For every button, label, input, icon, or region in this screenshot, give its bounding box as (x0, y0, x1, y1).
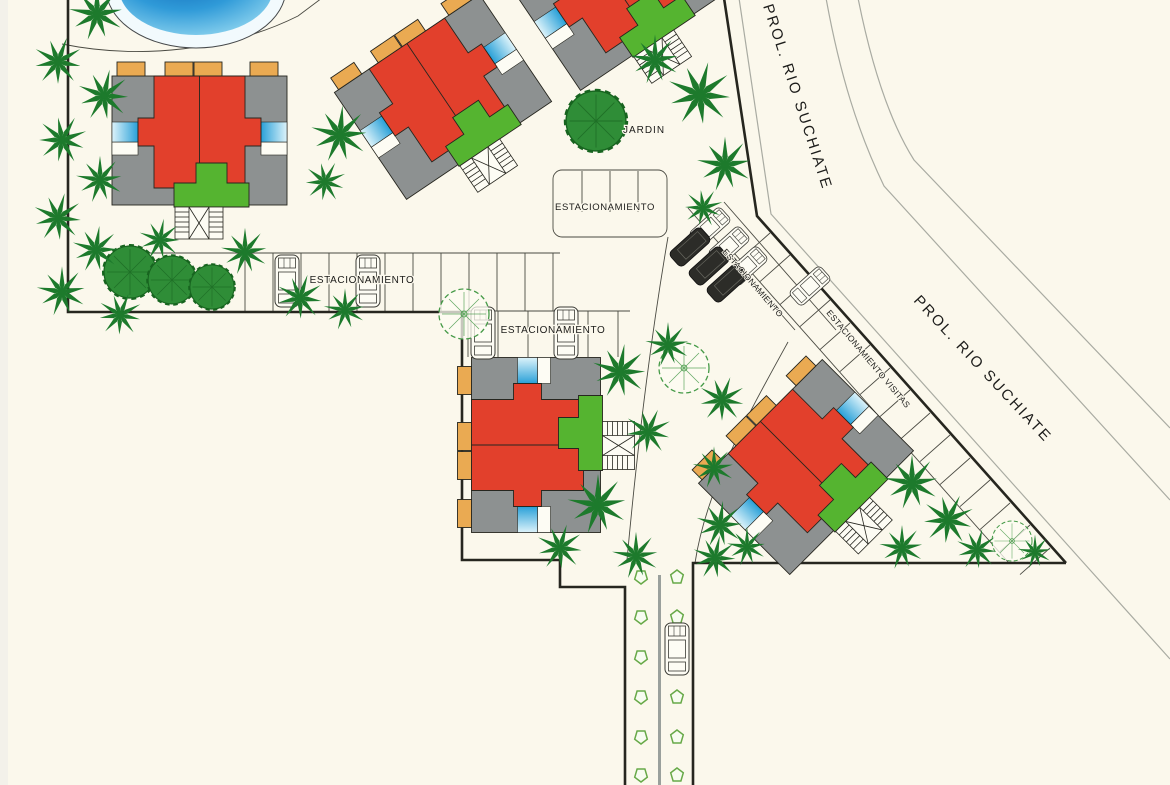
parking-label-left: ESTACIONAMIENTO (310, 275, 415, 286)
garden-label: JARDIN (623, 125, 665, 136)
outline-tree (439, 289, 489, 339)
parking-label-upper: ESTACIONAMIENTO (555, 202, 655, 213)
scan-margin (0, 0, 8, 785)
site-plan-canvas: PROL. RIO SUCHIATE PROL. RIO SUCHIATE JA… (0, 0, 1170, 785)
site-plan-drawing: PROL. RIO SUCHIATE PROL. RIO SUCHIATE JA… (0, 0, 1170, 785)
parking-label-center: ESTACIONAMIENTO (501, 325, 606, 336)
car (665, 623, 689, 675)
